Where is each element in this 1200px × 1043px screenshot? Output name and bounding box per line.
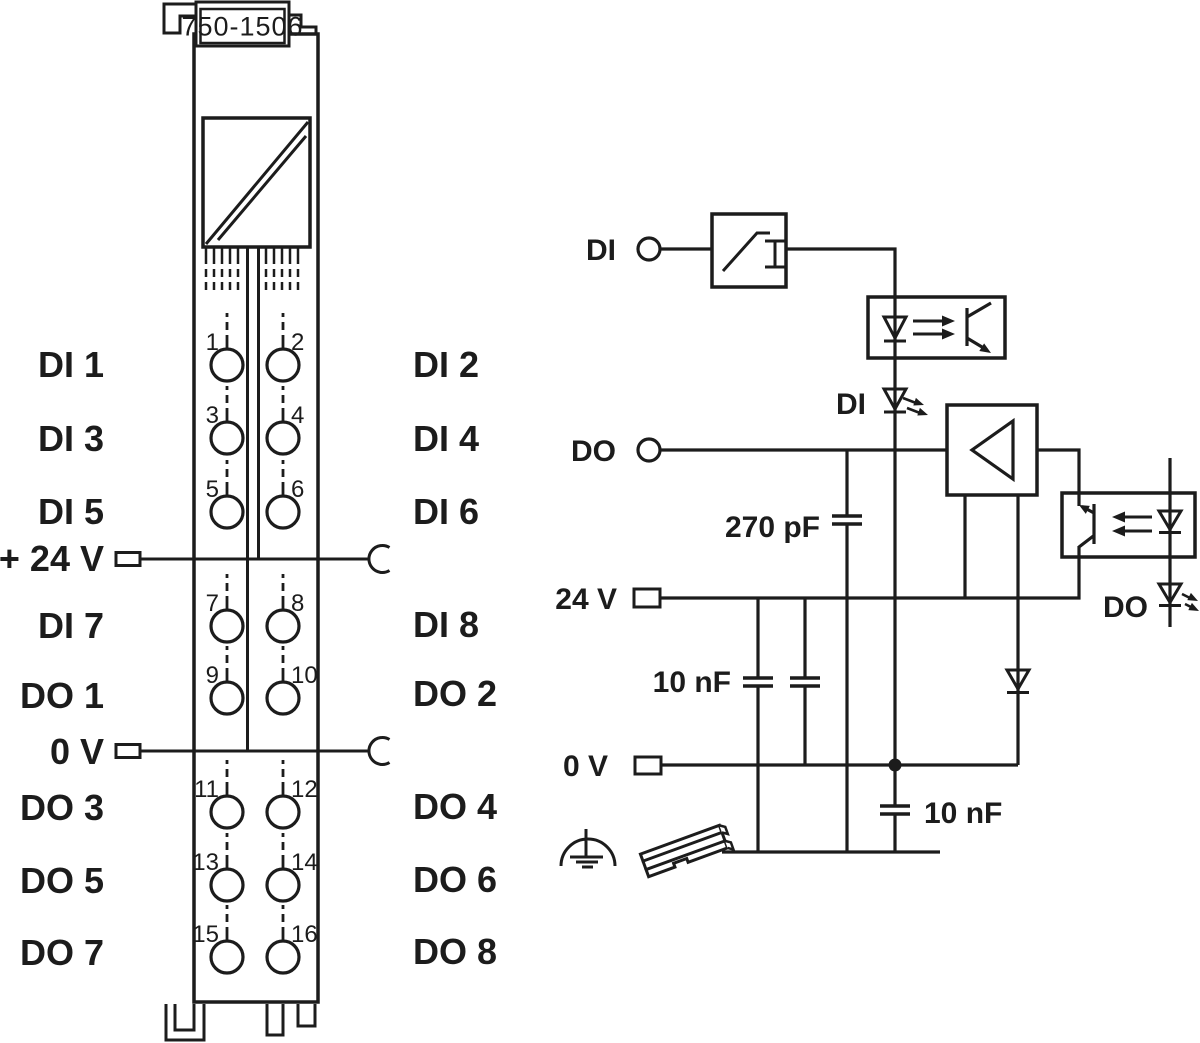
contact-number: 13 xyxy=(192,849,219,876)
v24-terminal-label: 24 V xyxy=(555,583,617,616)
cap-270pf-label: 270 pF xyxy=(725,511,820,544)
plus24v-connector xyxy=(116,553,140,566)
contact-number: 12 xyxy=(291,776,318,803)
do-led-label: DO xyxy=(1103,591,1148,624)
contact-number: 3 xyxy=(206,402,219,429)
driver-triangle-icon xyxy=(972,421,1013,479)
io-module: 750-1506 xyxy=(0,2,497,1040)
opto-do-light-arrowheads xyxy=(1112,512,1125,537)
contact-number: 8 xyxy=(291,590,304,617)
contact-number: 14 xyxy=(291,849,318,876)
channel-label-right: DI 4 xyxy=(413,418,479,459)
channel-label-left: DI 7 xyxy=(38,605,104,646)
contact-number: 4 xyxy=(291,402,304,429)
do-led-emission-arrowheads xyxy=(1187,593,1199,611)
capacitor-10nf-c-icon xyxy=(880,806,910,814)
junction-dot xyxy=(889,759,902,772)
cap-10nf-bottom-label: 10 nF xyxy=(924,797,1002,830)
contact-number: 9 xyxy=(206,662,219,689)
channel-label-left: DO 1 xyxy=(20,675,104,716)
di-led-emission-arrowheads xyxy=(913,398,928,416)
contact-number: 7 xyxy=(206,590,219,617)
channel-label-right: DO 6 xyxy=(413,859,497,900)
channel-label-right: DI 2 xyxy=(413,344,479,385)
cap-10nf-label: 10 nF xyxy=(653,666,731,699)
di-terminal-label: DI xyxy=(586,234,616,267)
wiring-diagram-page: 750-1506 xyxy=(0,0,1200,1043)
channel-label-right: DO 4 xyxy=(413,786,497,827)
zerov-connector xyxy=(116,745,140,758)
channel-label-right: DI 8 xyxy=(413,604,479,645)
channel-label-left: DO 5 xyxy=(20,860,104,901)
do-terminal-circle xyxy=(638,439,660,461)
di-led-label: DI xyxy=(836,388,866,421)
capacitor-10nf-a-icon xyxy=(743,678,773,686)
diagram-canvas: 750-1506 xyxy=(0,0,1200,1043)
contact-number: 5 xyxy=(206,476,219,503)
v0-terminal-connector xyxy=(635,757,661,774)
wire-do xyxy=(660,450,1079,493)
channel-label-right: DO 8 xyxy=(413,931,497,972)
contact-number: 16 xyxy=(291,921,318,948)
opto-do-phototransistor-icon xyxy=(1079,493,1094,557)
part-number: 750-1506 xyxy=(181,12,303,42)
channel-label-left: DI 5 xyxy=(38,491,104,532)
channel-label-left: 0 V xyxy=(50,731,104,772)
channel-label-left: DO 3 xyxy=(20,787,104,828)
contact-number: 15 xyxy=(192,921,219,948)
channel-label-left: DI 1 xyxy=(38,344,104,385)
module-foot-left xyxy=(166,1004,204,1040)
v0-terminal-label: 0 V xyxy=(563,750,608,783)
capacitor-10nf-b-icon xyxy=(790,678,820,686)
di-terminal-circle xyxy=(638,238,660,260)
din-rail-icon xyxy=(640,824,733,880)
circuit-schematic: DI DO 24 V 0 V DI DO 270 pF 10 nF 10 nF xyxy=(555,214,1199,880)
contact-number: 6 xyxy=(291,476,304,503)
contact-number: 10 xyxy=(291,662,318,689)
module-foot-right xyxy=(298,1004,315,1026)
v24-terminal-connector xyxy=(634,589,660,607)
channel-label-left: DI 3 xyxy=(38,418,104,459)
capacitor-270pf-icon xyxy=(832,516,862,524)
channel-label-left: DO 7 xyxy=(20,932,104,973)
opto-di-phototransistor-icon xyxy=(967,303,991,350)
do-terminal-label: DO xyxy=(571,435,616,468)
channel-label-right: DO 2 xyxy=(413,673,497,714)
module-foot-middle xyxy=(267,1004,283,1035)
wire-24v-rail xyxy=(661,557,1079,598)
ground-icon xyxy=(561,829,615,867)
channel-label-right: DI 6 xyxy=(413,491,479,532)
channel-label-left: + 24 V xyxy=(0,538,104,579)
contact-number: 2 xyxy=(291,329,304,356)
optocoupler-do-box xyxy=(1062,493,1195,557)
opto-di-light-arrowheads xyxy=(942,316,955,340)
plus24v-socket-arc xyxy=(369,546,390,573)
contact-number: 11 xyxy=(194,776,219,803)
opto-di-light-arrows xyxy=(913,321,942,334)
output-driver-box xyxy=(947,405,1037,495)
opto-do-light-arrows xyxy=(1124,517,1152,531)
contact-number: 1 xyxy=(206,329,219,356)
input-filter-icon xyxy=(723,233,785,271)
zerov-socket-arc xyxy=(369,737,390,764)
